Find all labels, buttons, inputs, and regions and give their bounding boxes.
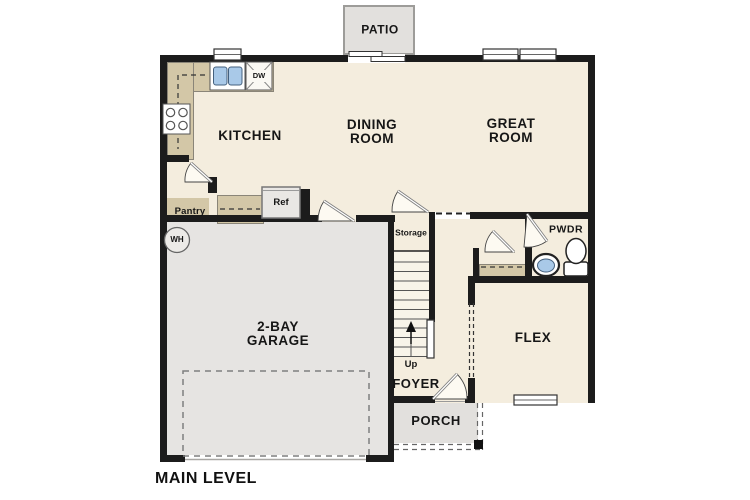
wall-ref-stub [300, 189, 310, 215]
wall-closet-left [473, 248, 479, 276]
kitchen-counter-left [167, 62, 194, 160]
label-great-room: GREAT ROOM [487, 117, 536, 145]
label-kitchen: KITCHEN [218, 129, 282, 143]
label-flex: FLEX [515, 331, 552, 345]
wall-stair-right [429, 212, 435, 322]
wall-pantry-stub-top [165, 155, 189, 162]
label-powder: PWDR [549, 224, 583, 235]
label-up: Up [405, 360, 418, 370]
wall-foyer-bottom [388, 396, 435, 403]
wall-powder-left [525, 219, 532, 276]
label-storage: Storage [395, 229, 427, 238]
label-pantry: Pantry [175, 207, 206, 217]
label-ref: Ref [273, 198, 288, 208]
wall-garage-bottom-right [366, 455, 394, 462]
wall-mid-right [470, 212, 595, 219]
wall-garage-bottom-left [160, 455, 185, 462]
wall-flex-left-stub-top [468, 283, 475, 305]
label-porch: PORCH [411, 414, 460, 428]
label-dw: DW [253, 72, 266, 80]
wall-foyer-bottom-stub [465, 396, 475, 403]
wall-pantry-stub-right [208, 177, 217, 193]
label-patio: PATIO [361, 24, 398, 37]
floor-plan: PATIO KITCHEN DINING ROOM GREAT ROOM 2-B… [0, 0, 750, 500]
wall-stair-left [388, 215, 394, 462]
wall-right [588, 55, 595, 403]
label-foyer: FOYER [392, 377, 439, 391]
wall-top [160, 55, 595, 62]
label-garage: 2-BAY GARAGE [247, 320, 309, 348]
plan-title: MAIN LEVEL [155, 470, 257, 488]
label-wh: WH [170, 236, 183, 244]
wall-flex-top [468, 276, 595, 283]
label-dining-room: DINING ROOM [347, 118, 397, 146]
wall-left [160, 55, 167, 462]
